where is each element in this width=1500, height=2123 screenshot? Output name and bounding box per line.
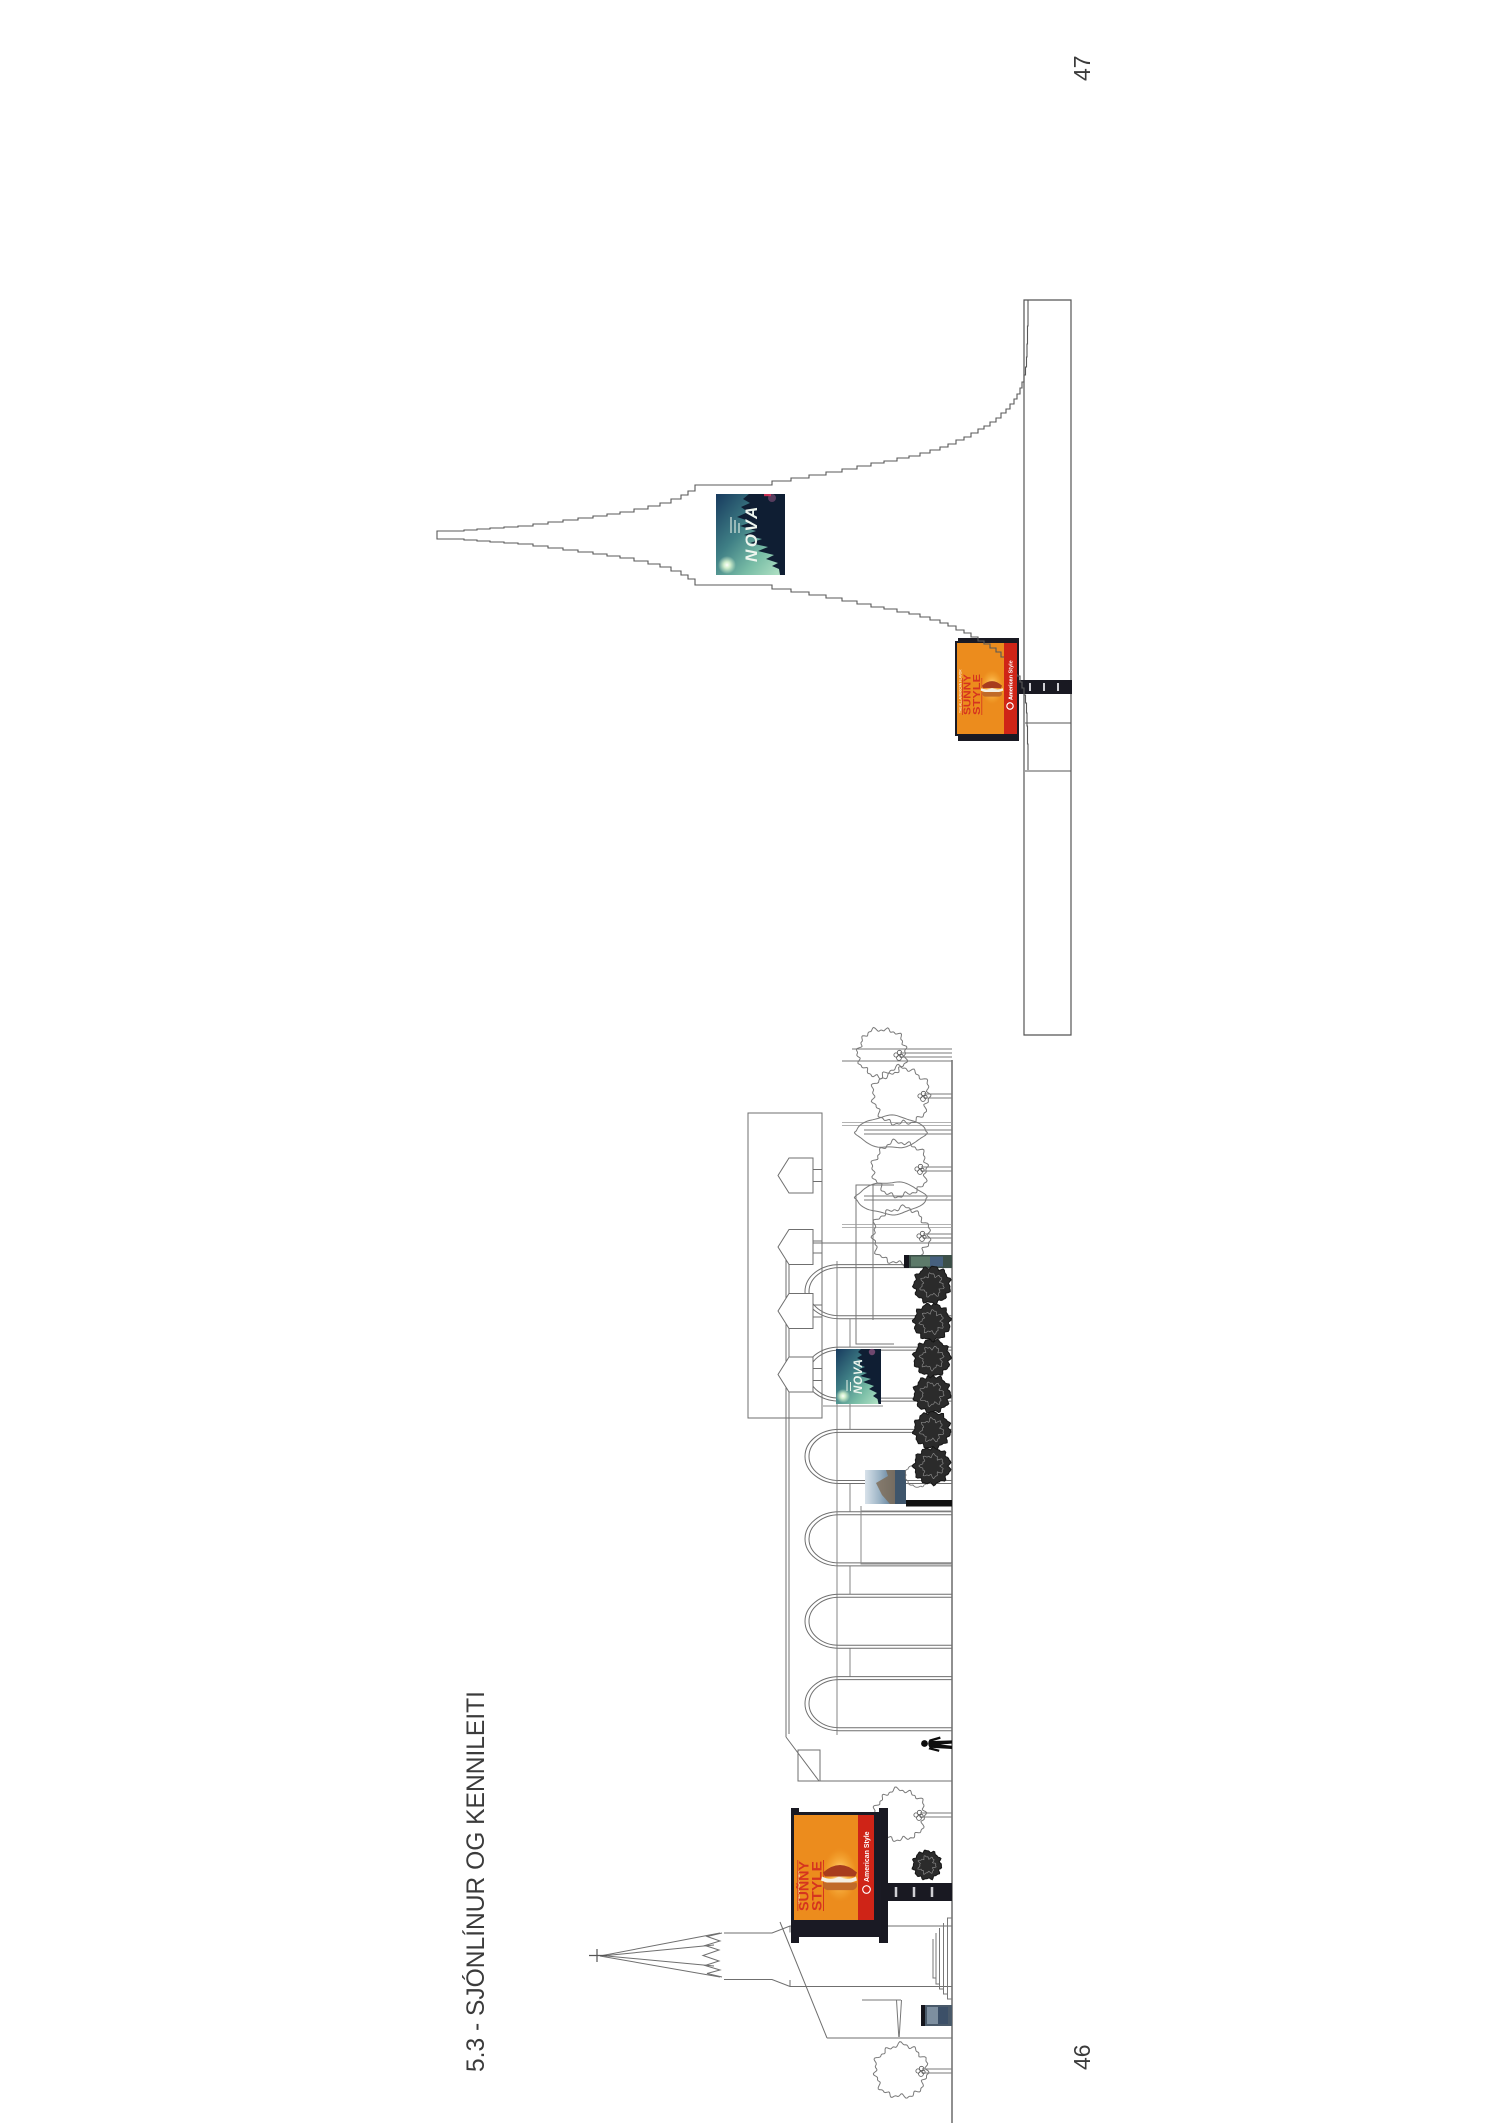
svg-text:American Style: American Style (1009, 660, 1015, 700)
svg-text:46: 46 (1069, 2044, 1095, 2070)
svg-text:STYLE: STYLE (809, 1861, 825, 1911)
svg-text:NOVA: NOVA (742, 504, 761, 562)
svg-text:47: 47 (1069, 55, 1095, 81)
svg-text:NOVA: NOVA (853, 1358, 865, 1394)
svg-text:American Style: American Style (864, 1831, 871, 1882)
svg-text:5.3 - SJÓNLÍNUR OG KENNILEITI: 5.3 - SJÓNLÍNUR OG KENNILEITI (461, 1691, 490, 2072)
